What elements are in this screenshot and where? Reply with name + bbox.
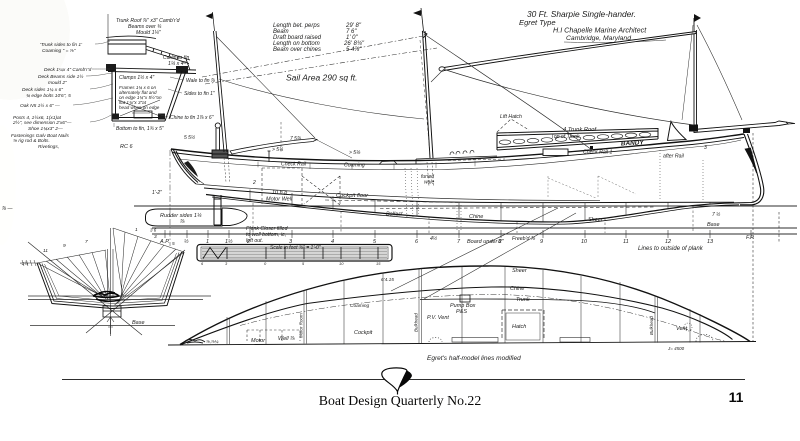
- svg-text:10: 10: [339, 261, 344, 266]
- svg-text:6'4.15: 6'4.15: [381, 277, 394, 283]
- svg-text:Rivetings,: Rivetings,: [38, 144, 59, 150]
- svg-text:Hatch: Hatch: [512, 324, 526, 330]
- svg-text:head when on edge: head when on edge: [119, 105, 160, 110]
- svg-text:10: 10: [581, 239, 588, 245]
- svg-text:1: 1: [135, 227, 138, 233]
- svg-text:Chine: Chine: [510, 286, 524, 292]
- svg-text:Ballast: Ballast: [386, 212, 403, 218]
- svg-text:'Trunk sides to fin 1': 'Trunk sides to fin 1': [40, 42, 83, 48]
- svg-text:3: 3: [704, 145, 707, 151]
- svg-text:¾ edge bolts 10'6", 5: ¾ edge bolts 10'6", 5: [26, 93, 71, 99]
- svg-text:Deck 1¼x 4" Camb'r'd: Deck 1¼x 4" Camb'r'd: [44, 67, 92, 73]
- svg-text:Chine to fin 1⅞ x 6": Chine to fin 1⅞ x 6": [170, 115, 214, 121]
- svg-text:> 5⅛: > 5⅛: [349, 150, 361, 156]
- svg-text:Motor: Motor: [251, 338, 266, 344]
- svg-text:Egret's half-model lines mo: Egret's half-model lines modified: [427, 355, 521, 362]
- svg-text:5 5½: 5 5½: [184, 134, 196, 141]
- svg-text:Well ⅞: Well ⅞: [278, 336, 295, 342]
- svg-text:1'-2": 1'-2": [152, 190, 162, 196]
- svg-text:Clamps 1½ x 4": Clamps 1½ x 4": [119, 74, 154, 81]
- svg-text:P&S: P&S: [456, 309, 467, 315]
- svg-text:Posts 4, 1½x6, 1(x1)at: Posts 4, 1½x6, 1(x1)at: [13, 114, 62, 121]
- svg-text:4½: 4½: [430, 235, 438, 242]
- svg-text:Oak N5 1½ x 6" —: Oak N5 1½ x 6" —: [20, 102, 60, 109]
- svg-text:H.I Chapelle Marine Architect: H.I Chapelle Marine Architect: [553, 26, 647, 35]
- svg-text:12: 12: [665, 239, 671, 245]
- svg-text:F.P.: F.P.: [746, 235, 755, 241]
- svg-text:Deck sides 1¼ x 6": Deck sides 1¼ x 6": [22, 87, 63, 93]
- svg-text:Bulkhead: Bulkhead: [649, 316, 654, 335]
- svg-text:2½", see dimension 2'x6"—: 2½", see dimension 2'x6"—: [12, 119, 72, 126]
- svg-text:Sail Area 290 sq ft.: Sail Area 290 sq ft.: [286, 73, 358, 83]
- svg-text:Beam over chines: Beam over chines: [273, 47, 321, 53]
- svg-text:11: 11: [729, 389, 744, 405]
- svg-text:9: 9: [63, 243, 66, 249]
- svg-text:Scale in feet ⅜" = 1'-0": Scale in feet ⅜" = 1'-0": [270, 245, 321, 251]
- svg-text:Check Rail: Check Rail: [281, 162, 307, 168]
- svg-text:Base: Base: [707, 222, 720, 228]
- svg-text:Deck Beams side 1½: Deck Beams side 1½: [38, 73, 83, 80]
- svg-text:BANDY: BANDY: [621, 139, 645, 147]
- svg-text:11: 11: [43, 248, 48, 254]
- svg-text:Coaming " = ⅞": Coaming " = ⅞": [42, 48, 76, 54]
- svg-text:Check Rail 1: Check Rail 1: [583, 150, 613, 156]
- svg-text:Cockpit floor: Cockpit floor: [336, 193, 369, 199]
- svg-text:15: 15: [376, 261, 381, 266]
- svg-text:Egret Type: Egret Type: [519, 18, 556, 27]
- svg-text:Coaming: Coaming: [344, 163, 365, 169]
- svg-text:3 6: 3 6: [150, 228, 157, 233]
- svg-text:3: 3: [154, 234, 157, 240]
- svg-text:Vent: Vent: [676, 326, 688, 332]
- svg-text:7: 7: [85, 239, 88, 245]
- svg-text:Bulkhead: Bulkhead: [414, 313, 419, 332]
- svg-text:mould 2": mould 2": [48, 80, 67, 86]
- svg-text:Freeb'd ⅞: Freeb'd ⅞: [512, 236, 536, 242]
- svg-text:Trunk: Trunk: [516, 297, 530, 303]
- svg-text:Bottom to fin, 1¾ x 5": Bottom to fin, 1¾ x 5": [116, 126, 164, 132]
- svg-text:RC 6: RC 6: [120, 144, 133, 150]
- svg-text:7 5⅞: 7 5⅞: [290, 136, 302, 142]
- svg-text:5: 5: [172, 241, 175, 247]
- svg-text:J= 4500: J= 4500: [667, 346, 685, 351]
- svg-text:Motor Well: Motor Well: [266, 197, 293, 203]
- svg-text:Top of Trunk: Top of Trunk: [551, 134, 580, 140]
- svg-text:Cockpit: Cockpit: [354, 330, 373, 336]
- svg-text:11: 11: [623, 239, 629, 245]
- svg-text:Base: Base: [132, 320, 145, 326]
- svg-text:Sheer: Sheer: [588, 217, 604, 223]
- svg-text:4 Trunk Roof: 4 Trunk Roof: [563, 127, 597, 133]
- svg-text:10 h.p: 10 h.p: [272, 190, 287, 196]
- svg-text:Motor Room: Motor Room: [299, 313, 304, 338]
- svg-text:after Rail: after Rail: [663, 154, 685, 160]
- svg-text:⅜ rig rod & Bolts.: ⅜ rig rod & Bolts.: [13, 138, 50, 144]
- svg-text:Sheer: Sheer: [512, 268, 528, 274]
- svg-text:⅞ —: ⅞ —: [2, 206, 14, 212]
- svg-text:13: 13: [707, 239, 714, 245]
- svg-text:Sides to fin 1": Sides to fin 1": [184, 91, 215, 97]
- svg-text:½: ½: [184, 238, 189, 245]
- svg-text:Chine: Chine: [469, 214, 483, 220]
- svg-text:Wale to fin ⅞: Wale to fin ⅞: [186, 78, 216, 84]
- svg-text:P.V. Vent: P.V. Vent: [427, 315, 449, 321]
- svg-text:7 ½: 7 ½: [712, 211, 721, 218]
- svg-text:Lift Hatch: Lift Hatch: [500, 114, 522, 120]
- svg-text:left out.: left out.: [246, 238, 263, 244]
- svg-text:Mould 1¼": Mould 1¼": [136, 30, 162, 36]
- svg-text:Shoe 1¾x3" 2—: Shoe 1¾x3" 2—: [28, 126, 63, 132]
- svg-text:2: 2: [252, 180, 256, 186]
- svg-text:Coaming: Coaming: [350, 303, 370, 309]
- svg-text:⅜,⅞¼: ⅜,⅞¼: [206, 339, 219, 344]
- svg-text:9: 9: [540, 239, 543, 245]
- svg-text:⅞: ⅞: [180, 219, 185, 225]
- svg-text:Boat Design Quarterly No.22: Boat Design Quarterly No.22: [319, 393, 482, 408]
- svg-text:Lines to outside of plank: Lines to outside of plank: [638, 246, 704, 252]
- svg-text:> 5¼: > 5¼: [272, 147, 283, 153]
- svg-text:Cambridge, Maryland: Cambridge, Maryland: [566, 35, 631, 42]
